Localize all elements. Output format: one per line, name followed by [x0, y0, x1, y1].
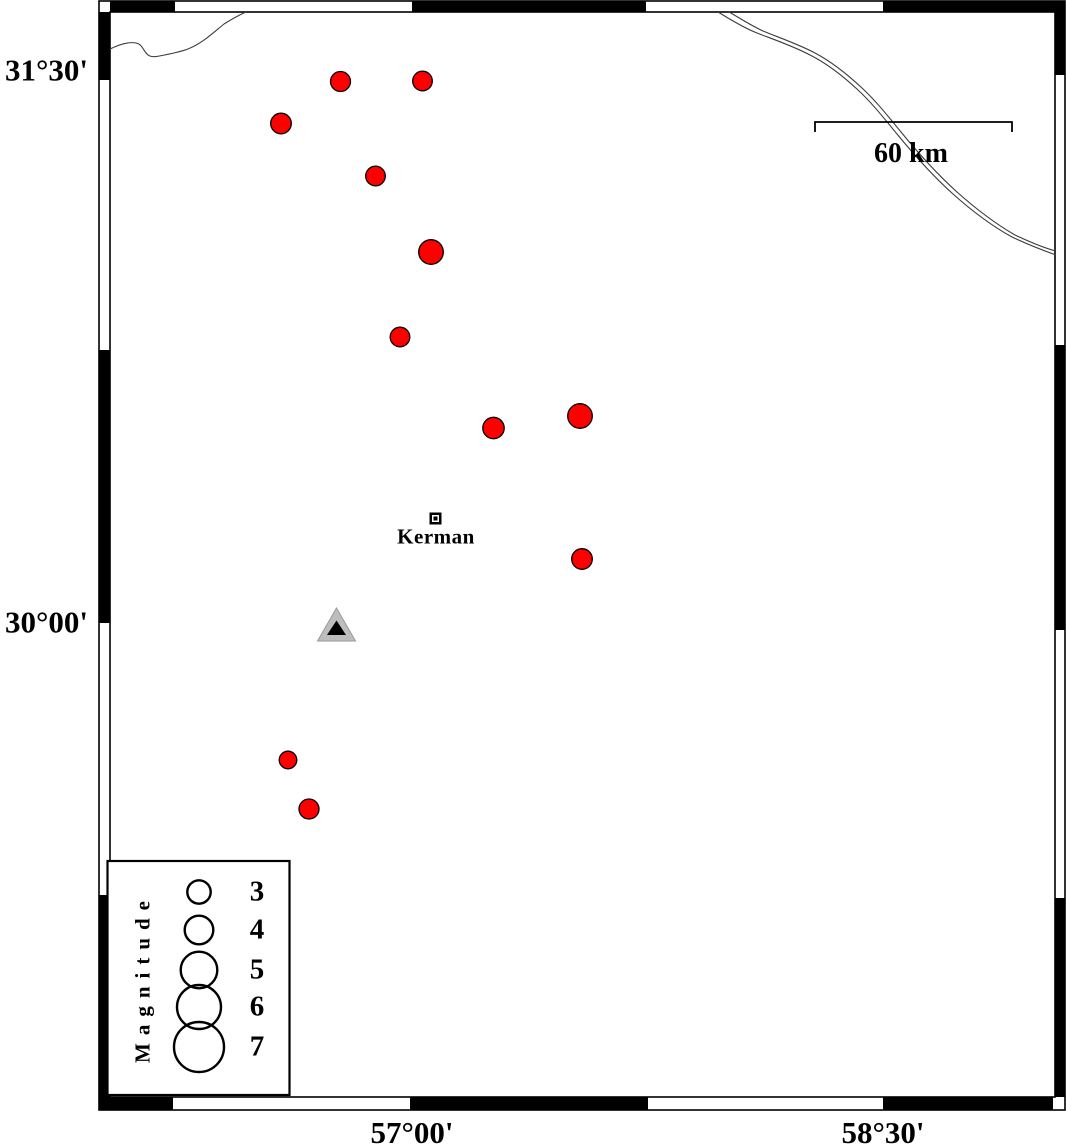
frame-tick-bottom: [110, 1097, 173, 1110]
earthquake-marker: [483, 417, 504, 438]
city-label: Kerman: [397, 527, 475, 548]
river-line: [718, 12, 1056, 255]
frame-tick-top: [110, 1, 175, 12]
scale-bar: [815, 122, 1012, 132]
city-marker-dot: [434, 517, 438, 521]
legend-title: Magnitude: [133, 893, 154, 1063]
earthquake-marker: [331, 72, 351, 92]
earthquake-marker: [413, 71, 433, 91]
earthquake-marker: [299, 799, 319, 819]
river-line: [110, 12, 246, 57]
scale-bar-label: 60 km: [874, 140, 948, 168]
earthquake-marker: [366, 166, 386, 186]
lon-label-58-30: 58°30': [841, 1117, 924, 1147]
frame-tick-right: [1055, 345, 1065, 630]
earthquake-marker: [572, 549, 593, 570]
legend-value-label: 3: [250, 878, 265, 907]
frame-tick-top: [883, 1, 1055, 12]
map-figure: 31°30' 30°00' 57°00' 58°30' 60 km Kerman…: [0, 0, 1066, 1147]
lat-label-31-30: 31°30': [5, 55, 88, 86]
legend-value-label: 5: [250, 956, 265, 985]
legend-value-label: 4: [250, 916, 265, 945]
map-canvas: [0, 0, 1066, 1147]
frame-tick-top: [412, 1, 646, 12]
frame-tick-bottom: [410, 1097, 648, 1110]
lon-label-57-00: 57°00': [370, 1117, 453, 1147]
frame-tick-right: [1055, 898, 1065, 1097]
legend-value-label: 6: [250, 993, 265, 1022]
lat-label-30-00: 30°00': [5, 607, 88, 638]
earthquake-marker: [271, 113, 292, 134]
frame-tick-left: [99, 12, 110, 80]
frame-tick-left: [99, 350, 110, 623]
river-line: [729, 12, 1056, 251]
earthquake-marker: [279, 751, 297, 769]
earthquake-marker: [390, 327, 410, 347]
frame-tick-right: [1055, 1, 1065, 75]
legend-value-label: 7: [250, 1033, 265, 1062]
earthquake-marker: [419, 240, 444, 265]
frame-tick-bottom: [883, 1097, 1053, 1110]
earthquake-marker: [568, 404, 593, 429]
